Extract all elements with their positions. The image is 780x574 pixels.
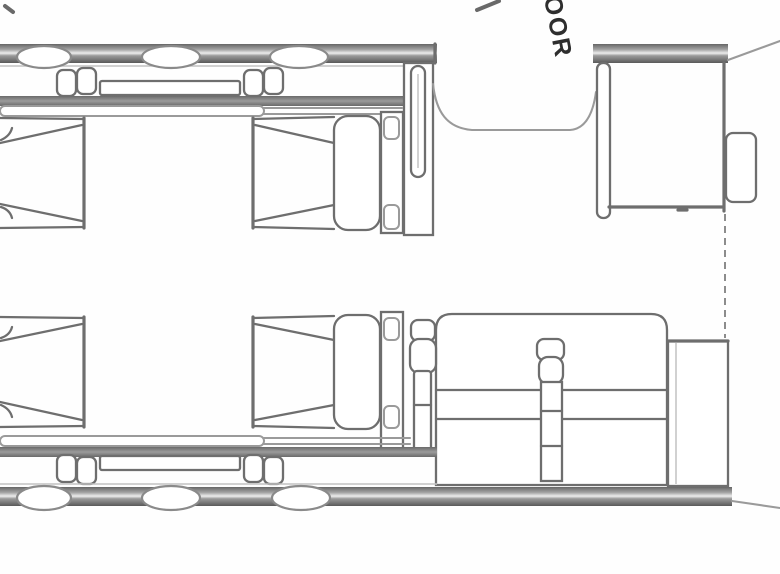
dinette-table	[100, 81, 240, 95]
scan-artifact-stroke	[477, 1, 499, 10]
seatbelt-strap	[541, 382, 562, 481]
top-wall	[0, 44, 437, 68]
galley-left-panel	[597, 63, 610, 218]
console-detail	[384, 406, 399, 428]
console-detail	[384, 117, 399, 139]
chair-armrest-line	[255, 125, 334, 143]
end-cabinet-body	[668, 341, 728, 486]
captain-chair-bottom-right	[253, 315, 380, 429]
sofa	[410, 314, 667, 485]
rear-dinette	[0, 436, 437, 484]
door-label: DOOR	[534, 0, 577, 61]
galley-cabinet	[593, 41, 780, 218]
floor-line	[732, 501, 780, 508]
chair-backrest	[334, 315, 380, 429]
window-ellipse	[272, 486, 330, 510]
door-swing-path	[433, 84, 596, 130]
entry-partition	[404, 63, 433, 235]
chair-back-curve	[1, 128, 12, 140]
sofa-seatbelt-center	[537, 339, 564, 481]
bus-floorplan-canvas: DOOR	[0, 0, 780, 574]
chair-backrest	[334, 116, 380, 230]
dinette-table	[100, 456, 240, 470]
floorplan-drawing: DOOR	[0, 0, 780, 574]
window-ellipse	[142, 486, 200, 510]
seatbelt-buckle	[57, 455, 76, 482]
chair-top-edge	[253, 117, 334, 119]
seatbelt-buckle	[244, 455, 263, 482]
seatbelt-buckle	[539, 357, 563, 384]
chair-top-edge	[253, 316, 334, 318]
bench-front-bar	[0, 106, 264, 116]
seatbelt-buckle	[77, 457, 96, 484]
chair-armrest-line	[255, 324, 334, 340]
chair-back-curve	[1, 207, 12, 218]
seatbelt-buckle	[77, 68, 96, 94]
seatbelt-buckle	[57, 70, 76, 96]
chair-top-edge	[0, 317, 84, 318]
captain-chair-bottom-left	[0, 317, 84, 427]
console-detail	[384, 205, 399, 229]
chair-bottom-edge	[0, 426, 84, 427]
chair-back-curve	[1, 405, 12, 417]
captain-chair-top-left	[0, 118, 84, 228]
side-console-top	[381, 112, 403, 233]
seatbelt-buckle	[264, 457, 283, 484]
front-bodywork-line	[728, 41, 780, 60]
galley-top-band	[593, 44, 728, 63]
galley-side-attachment	[726, 133, 756, 202]
front-dinette	[0, 68, 404, 116]
bottom-wall-band	[0, 487, 732, 506]
scan-artifact-dot	[5, 6, 13, 12]
side-console-bottom	[381, 312, 403, 450]
bench-front-bar	[0, 436, 264, 446]
seatbelt-strap	[414, 371, 431, 450]
sofa-seatbelt-left	[410, 320, 436, 450]
chair-bottom-edge	[253, 426, 334, 428]
captain-chair-top-right	[253, 116, 380, 230]
chair-bottom-edge	[0, 227, 84, 228]
seatbelt-buckle	[244, 70, 263, 96]
window-ellipse	[17, 486, 71, 510]
bottom-wall	[0, 484, 780, 510]
window-ellipse	[17, 46, 71, 68]
bench-shadow-band	[0, 96, 404, 106]
window-ellipse	[142, 46, 200, 68]
seatbelt-buckle	[264, 68, 283, 94]
chair-top-edge	[0, 118, 84, 119]
chair-back-curve	[1, 327, 12, 338]
door-area: DOOR	[433, 0, 596, 130]
chair-armrest-line	[255, 205, 334, 221]
chair-armrest-line	[255, 405, 334, 420]
seatbelt-buckle	[410, 339, 436, 373]
window-ellipse	[270, 46, 328, 68]
chair-bottom-edge	[253, 227, 334, 229]
console-detail	[384, 318, 399, 340]
end-cabinet	[668, 341, 728, 486]
